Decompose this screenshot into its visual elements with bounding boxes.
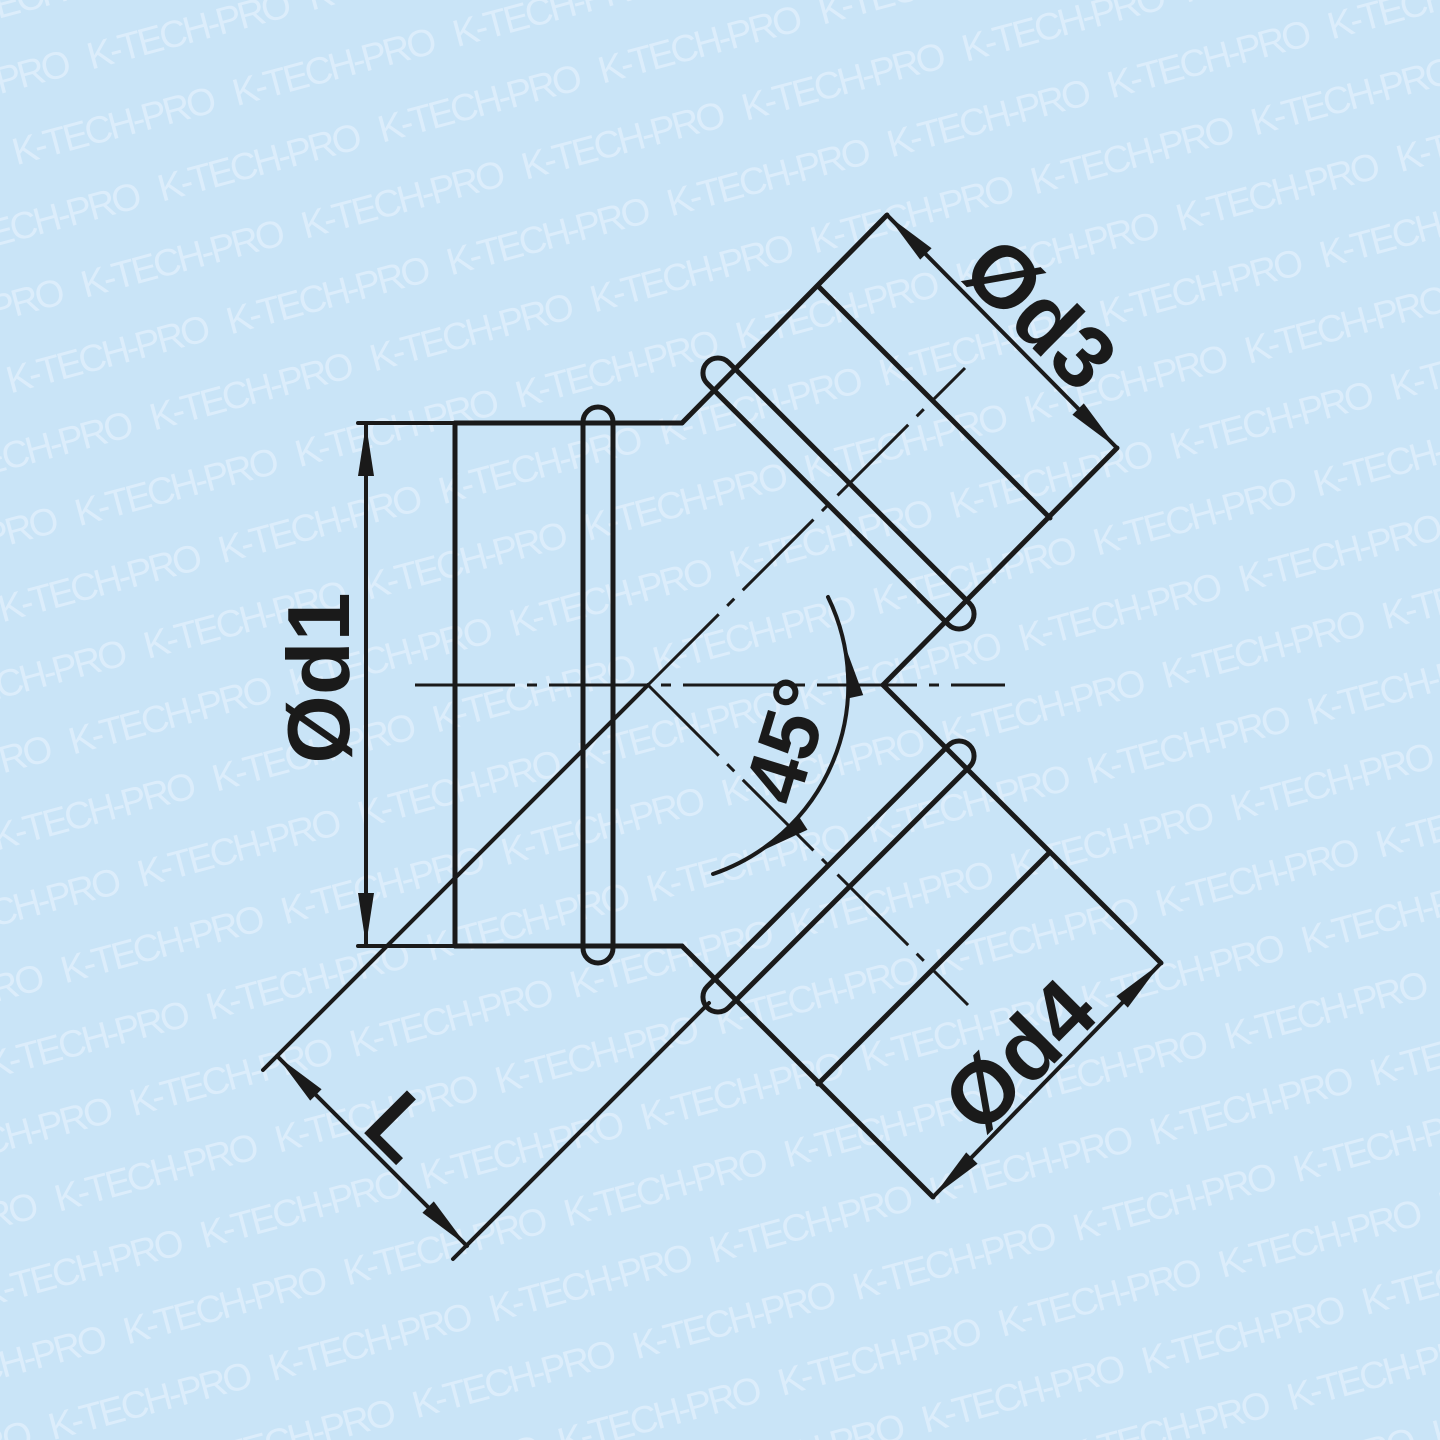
label-angle: 45° xyxy=(727,668,850,813)
dim-d3-arrow-lower xyxy=(1072,403,1117,448)
centerlines xyxy=(415,368,1005,1005)
dim-d4-arrow-upper xyxy=(1116,963,1161,1008)
dim-d3: Ød3 xyxy=(887,215,1136,448)
dim-d1-arrow-up xyxy=(358,424,374,476)
angle-arrow-bottom xyxy=(757,816,808,853)
dim-length-extension-2 xyxy=(453,1003,709,1259)
branch-d4-right-edge xyxy=(883,685,1161,963)
dim-d3-arrow-upper xyxy=(887,215,932,260)
dim-d1: Ød1 xyxy=(269,423,374,945)
dim-d1-arrow-down xyxy=(358,893,374,945)
dim-length-arrow-lower xyxy=(422,1201,467,1246)
label-d3: Ød3 xyxy=(945,218,1136,409)
dim-angle: 45° xyxy=(713,597,863,874)
centerline-branch-d3 xyxy=(648,368,965,685)
branch-d3-right-edge xyxy=(883,448,1117,685)
dim-d4-arrow-lower xyxy=(933,1152,978,1197)
pipe-fitting-drawing: Ød1 Ød3 Ød4 L xyxy=(0,0,1440,1440)
dim-length-arrow-upper xyxy=(277,1056,322,1101)
branch-d4-left-edge xyxy=(682,946,933,1197)
label-d1: Ød1 xyxy=(269,592,368,763)
dim-length: L xyxy=(263,685,709,1259)
label-length: L xyxy=(347,1072,455,1180)
drawing-page: K-TECH-PRO K-TECH-PRO K-TECH-PRO K-TECH-… xyxy=(0,0,1440,1440)
